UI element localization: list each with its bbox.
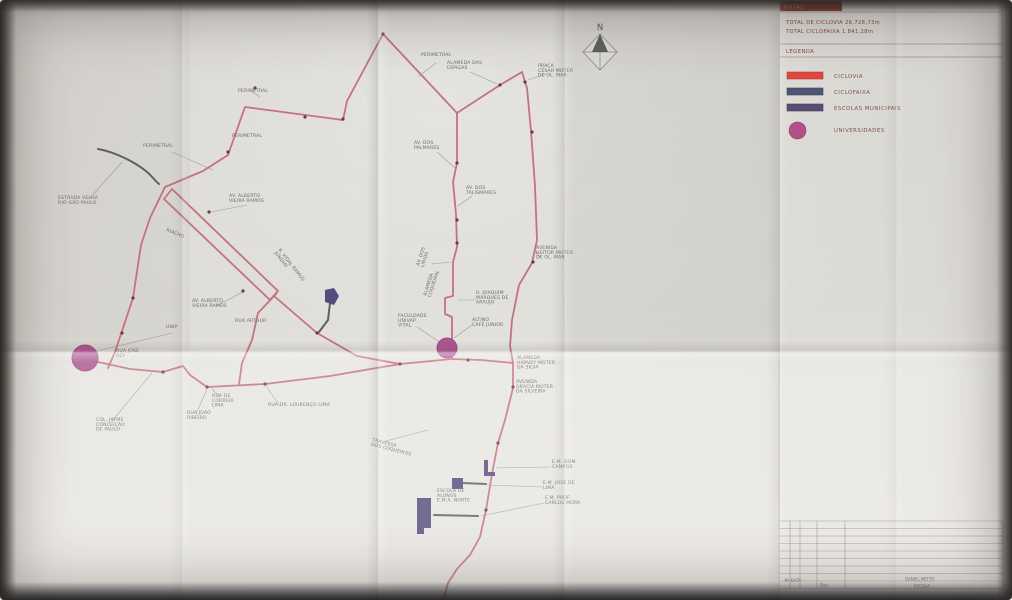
titleblock-drawn-label: Des.: [820, 583, 829, 588]
map-street-label-line: RUA ARTHUR: [235, 318, 267, 324]
map-street-label-line: DE PAULO: [96, 427, 120, 433]
map-street-label-line: PERIMETRAL: [421, 52, 451, 58]
route-junction-dot: [120, 331, 123, 334]
route-junction-dot: [455, 161, 458, 164]
map-street-label: ESCOLA DEALUNOSE.M.A. NORTE: [437, 488, 470, 504]
map-street-label: AVENIDAGRACIA MOTERDA SILVEIRA: [516, 379, 554, 395]
map-street-label-line: E.M.A. NORTE: [437, 498, 470, 504]
map-street-label: PERIMETRAL: [238, 88, 268, 94]
map-street-label-line: CAMPOS: [552, 464, 573, 470]
map-street-label-line: PERIMETRAL: [143, 143, 173, 149]
map-street-label: AVENIDAHEITOR MOTERDE OL. MAR: [536, 245, 574, 261]
map-street-label-line: RIBEIRO: [187, 415, 207, 421]
map-street-label: RIACHO: [165, 227, 185, 240]
map-street-label: PERIMETRAL: [143, 143, 173, 149]
map-street-label: AV. DOSLÍRIOS: [415, 246, 431, 268]
route-junction-dot: [303, 115, 306, 118]
map-street-label-line: TALISMARES: [465, 190, 496, 196]
map-street-label: RUA DR. LOURENÇO LIMA: [268, 402, 331, 408]
map-street-label: UNIP: [166, 324, 178, 330]
ciclovia-route: [108, 155, 228, 368]
map-street-label: AV. DOSPALMARES: [414, 140, 440, 151]
route-junction-dot: [466, 358, 469, 361]
ciclofaixa-route: [319, 303, 330, 332]
route-junction-dot: [131, 296, 134, 299]
ciclovia-route: [172, 189, 278, 291]
label-leader-line: [90, 162, 122, 198]
map-street-label: RUA JOSÉREY: [116, 346, 139, 359]
map-street-label-line: RIO–SÃO PAULO: [58, 199, 97, 206]
map-street-label-line: RUA JOSÉ: [116, 346, 139, 354]
map-street-label-line: RIACHO: [165, 227, 185, 240]
route-junction-dot: [530, 130, 533, 133]
map-street-label: E.M. JOSÉ DELIMA: [543, 478, 575, 491]
ciclovia-route: [164, 189, 278, 300]
ciclovia-route: [164, 199, 270, 300]
map-drawing: ESTRADA VELHARIO–SÃO PAULOPERIMETRALPERI…: [0, 0, 1012, 600]
map-street-label: PERIMETRAL: [421, 52, 451, 58]
label-leader-line: [211, 205, 247, 212]
route-junction-dot: [484, 508, 487, 511]
map-street-label-line: PERIMETRAL: [232, 133, 262, 139]
route-junction-dot: [511, 385, 514, 388]
map-street-label: R. VIDAL RAMOSJUNDIAÍ: [272, 247, 306, 286]
total-ciclofaixa-text: TOTAL CICLOFAIXA 1.841,28m: [785, 29, 873, 35]
route-junction-dot: [207, 210, 210, 213]
ciclofaixa-route: [463, 483, 486, 484]
route-junction-dot: [531, 260, 534, 263]
map-street-label: RUA JOÃORIBEIRO: [187, 409, 211, 421]
route-junction-dot: [226, 150, 229, 153]
north-arrow: N: [583, 23, 617, 70]
ciclovia-route: [445, 113, 457, 359]
route-junction-dot: [341, 117, 344, 120]
map-street-label: E.M. PROF.CARLOS MORA: [545, 495, 581, 506]
label-leader-line: [112, 373, 152, 421]
label-leader-line: [172, 152, 213, 170]
route-junction-dot: [496, 441, 499, 444]
map-street-label-line: E.M. JOSÉ DE: [543, 478, 575, 486]
route-junction-dot: [381, 32, 384, 35]
map-street-label-line: PERIMETRAL: [238, 88, 268, 94]
map-street-label: AV. ALBERTOVIEIRA RAMOS: [192, 298, 227, 309]
legend-title: LEGENDA: [786, 49, 814, 55]
map-street-label: RUA ARTHUR: [235, 318, 267, 324]
legend-swatch-universidades: [789, 122, 806, 139]
map-street-label-line: DE OL. MAR: [536, 255, 565, 261]
label-leader-line: [437, 152, 455, 168]
map-street-label-line: DE OL. MAR: [538, 73, 567, 79]
total-ciclovia-text: TOTAL DE CICLOVIA 26.728,73m: [785, 20, 880, 26]
label-leader-line: [386, 430, 428, 441]
map-street-label-line: VITAL: [398, 323, 412, 329]
map-street-label: PRAÇACÉSAR MOTERDE OL. MAR: [538, 63, 574, 79]
map-street-label-line: VIEIRA RAMOS: [229, 198, 264, 204]
map-street-label: PERIMETRAL: [232, 133, 262, 139]
map-photo: ESTRADA VELHARIO–SÃO PAULOPERIMETRALPERI…: [0, 0, 1012, 600]
map-street-label: ALAMEDAHARVEY MOTERDA SILVA: [517, 355, 556, 371]
legend-label-escolas: ESCOLAS MUNICIPAIS: [834, 106, 901, 112]
legend-label-ciclovia: CICLOVIA: [834, 74, 863, 80]
north-label: N: [597, 23, 603, 33]
map-street-label: TRAVESSADOS COQUEIROS: [369, 437, 413, 458]
map-street-label-line: RUA DR. LOURENÇO LIMA: [268, 402, 331, 408]
label-leader-line: [481, 503, 544, 516]
school-marker: [325, 288, 339, 305]
route-junction-dot: [241, 289, 244, 292]
ciclovia-route: [98, 359, 513, 387]
panel-header-tab-label: NOTAS: [784, 5, 804, 11]
ciclofaixa-route: [434, 515, 478, 516]
map-street-label: E.M. DOMCAMPOS: [552, 459, 576, 470]
map-street-label: AV. DOSTALISMARES: [465, 185, 496, 196]
route-junction-dot: [205, 385, 208, 388]
map-street-label-line: LIMA: [543, 485, 555, 491]
route-junction-dot: [455, 241, 458, 244]
route-junction-dot: [523, 80, 526, 83]
map-street-label-line: UNIP: [166, 324, 178, 330]
map-street-label-line: DA SILVEIRA: [516, 389, 546, 395]
titleblock-scale-label: ESCALA: [914, 584, 930, 589]
map-street-label-line: VIEIRA RAMOS: [192, 303, 227, 309]
map-street-label-line: REY: [116, 353, 125, 359]
label-leader-line: [470, 72, 497, 84]
route-network-layer: ESTRADA VELHARIO–SÃO PAULOPERIMETRALPERI…: [58, 32, 581, 598]
legend-swatch-escolas: [787, 104, 823, 111]
route-junction-dot: [161, 370, 164, 373]
map-street-label-line: ARAUJO: [476, 300, 495, 306]
map-street-label: R. JOAQUIMMARQUES DEARAUJO: [476, 290, 509, 306]
map-street-label: AV. ALBERTOVIEIRA RAMOS: [229, 193, 264, 204]
ciclovia-route: [274, 296, 400, 364]
legend-label-ciclofaixa: CICLOFAIXA: [834, 90, 870, 96]
route-junction-dot: [315, 331, 318, 334]
map-street-label-line: LIMA: [212, 403, 224, 409]
map-street-label-line: DA SILVA: [517, 365, 539, 371]
university-marker: [72, 345, 98, 371]
map-street-label: RUA DECORREIALIMA: [212, 393, 234, 409]
map-street-label: FACULDADEUNIVAPVITAL: [398, 313, 427, 329]
ciclovia-route: [239, 294, 276, 384]
map-street-label-line: ESPIGAS: [447, 65, 468, 71]
titleblock-rev-cells: Nº DATA: [785, 578, 802, 583]
label-leader-line: [454, 325, 472, 338]
label-leader-line: [496, 467, 551, 468]
map-street-label-line: CARLOS MORA: [545, 500, 581, 506]
legend-swatch-ciclofaixa: [787, 88, 823, 95]
map-street-label: ALAMEDACOQUEIRAL: [422, 268, 441, 298]
label-leader-line: [458, 196, 472, 206]
route-junction-dot: [398, 362, 401, 365]
legend-label-universidades: UNIVERSIDADES: [834, 128, 885, 134]
school-marker: [417, 498, 431, 534]
university-marker: [437, 338, 457, 358]
school-marker: [452, 478, 463, 489]
route-junction-dot: [455, 218, 458, 221]
titleblock-author: DANIEL NETTO: [905, 577, 934, 582]
map-street-label: ESTRADA VELHARIO–SÃO PAULO: [58, 195, 99, 206]
map-street-label-line: PALMARES: [414, 145, 440, 151]
map-street-label-line: R. VIDAL RAMOS: [276, 248, 305, 283]
route-junction-dot: [263, 382, 266, 385]
legend-swatch-ciclovia: [787, 72, 823, 79]
label-leader-line: [432, 262, 451, 264]
map-street-label: ALTINOCAFÉ JUNIOR: [472, 317, 504, 328]
label-leader-line: [417, 327, 441, 343]
label-leader-line: [487, 485, 542, 487]
route-junction-dot: [498, 83, 501, 86]
map-street-label: COL. JAYMECONCEIÇÃODE PAULO: [96, 417, 125, 433]
map-street-label: ALAMEDA DASESPIGAS: [447, 60, 482, 71]
